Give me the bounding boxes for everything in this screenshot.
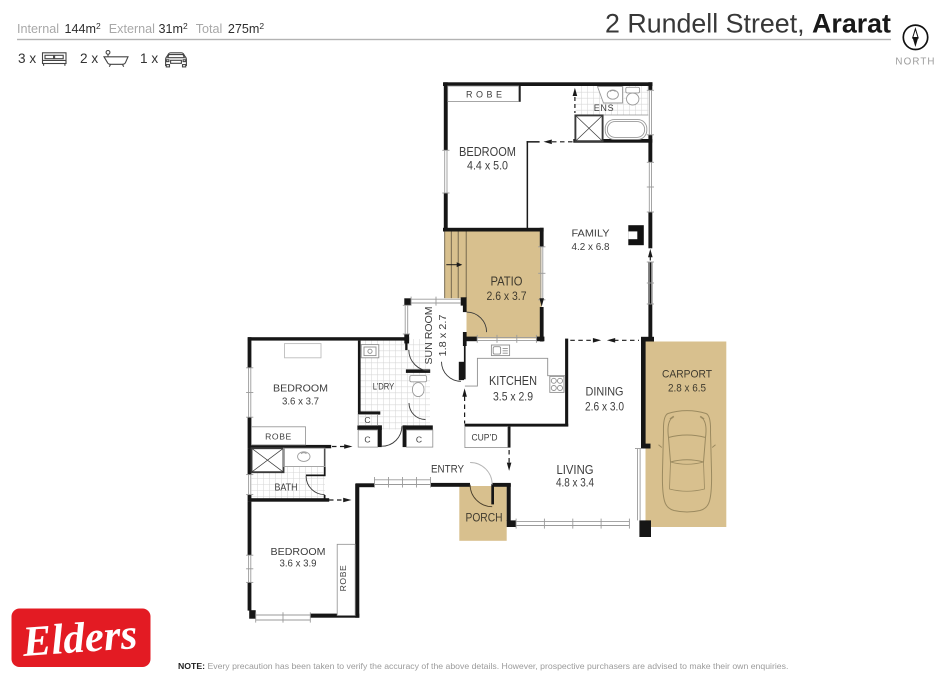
svg-text:ENS: ENS — [594, 103, 615, 113]
svg-text:BEDROOM: BEDROOM — [273, 383, 328, 395]
svg-text:3.6 x 3.7: 3.6 x 3.7 — [282, 396, 319, 408]
svg-text:PORCH: PORCH — [466, 511, 503, 525]
svg-text:NORTH: NORTH — [895, 57, 935, 68]
svg-text:2.8 x 6.5: 2.8 x 6.5 — [668, 383, 706, 395]
svg-text:1.8 x 2.7: 1.8 x 2.7 — [438, 314, 449, 356]
svg-text:2.6 x 3.7: 2.6 x 3.7 — [487, 289, 527, 303]
svg-text:C: C — [416, 435, 422, 445]
svg-text:4.8 x 3.4: 4.8 x 3.4 — [556, 476, 594, 490]
svg-text:SUN ROOM: SUN ROOM — [424, 307, 435, 365]
svg-text:BATH: BATH — [275, 482, 298, 494]
svg-text:NOTE: Every precaution has bee: NOTE: Every precaution has been taken to… — [178, 661, 788, 671]
svg-text:FAMILY: FAMILY — [572, 228, 610, 240]
svg-text:2 x: 2 x — [80, 51, 98, 66]
svg-text:C: C — [364, 435, 370, 445]
svg-text:3 x: 3 x — [18, 51, 36, 66]
svg-text:KITCHEN: KITCHEN — [489, 374, 537, 388]
svg-text:ENTRY: ENTRY — [431, 464, 465, 476]
svg-text:4.2 x 6.8: 4.2 x 6.8 — [572, 241, 610, 253]
svg-text:2 Rundell Street, Ararat: 2 Rundell Street, Ararat — [605, 9, 891, 39]
svg-text:C: C — [364, 415, 370, 425]
svg-text:ROBE: ROBE — [338, 565, 348, 592]
svg-text:CARPORT: CARPORT — [662, 369, 712, 381]
svg-text:3.6 x 3.9: 3.6 x 3.9 — [280, 558, 317, 570]
svg-text:2.6 x 3.0: 2.6 x 3.0 — [585, 400, 624, 414]
svg-text:BEDROOM: BEDROOM — [271, 546, 326, 558]
svg-text:Internal 144m2External 31m2Tot: Internal 144m2External 31m2Total 275m2 — [17, 21, 264, 36]
svg-text:L’DRY: L’DRY — [373, 382, 395, 392]
svg-text:BEDROOM: BEDROOM — [459, 144, 516, 159]
svg-text:4.4 x 5.0: 4.4 x 5.0 — [467, 159, 508, 173]
svg-text:3.5 x 2.9: 3.5 x 2.9 — [493, 390, 533, 404]
svg-text:Elders: Elders — [20, 611, 139, 666]
svg-text:PATIO: PATIO — [491, 275, 523, 289]
svg-text:DINING: DINING — [586, 385, 624, 399]
svg-text:1 x: 1 x — [140, 51, 158, 66]
svg-text:ROBE: ROBE — [265, 431, 292, 441]
svg-text:CUP’D: CUP’D — [472, 433, 498, 444]
